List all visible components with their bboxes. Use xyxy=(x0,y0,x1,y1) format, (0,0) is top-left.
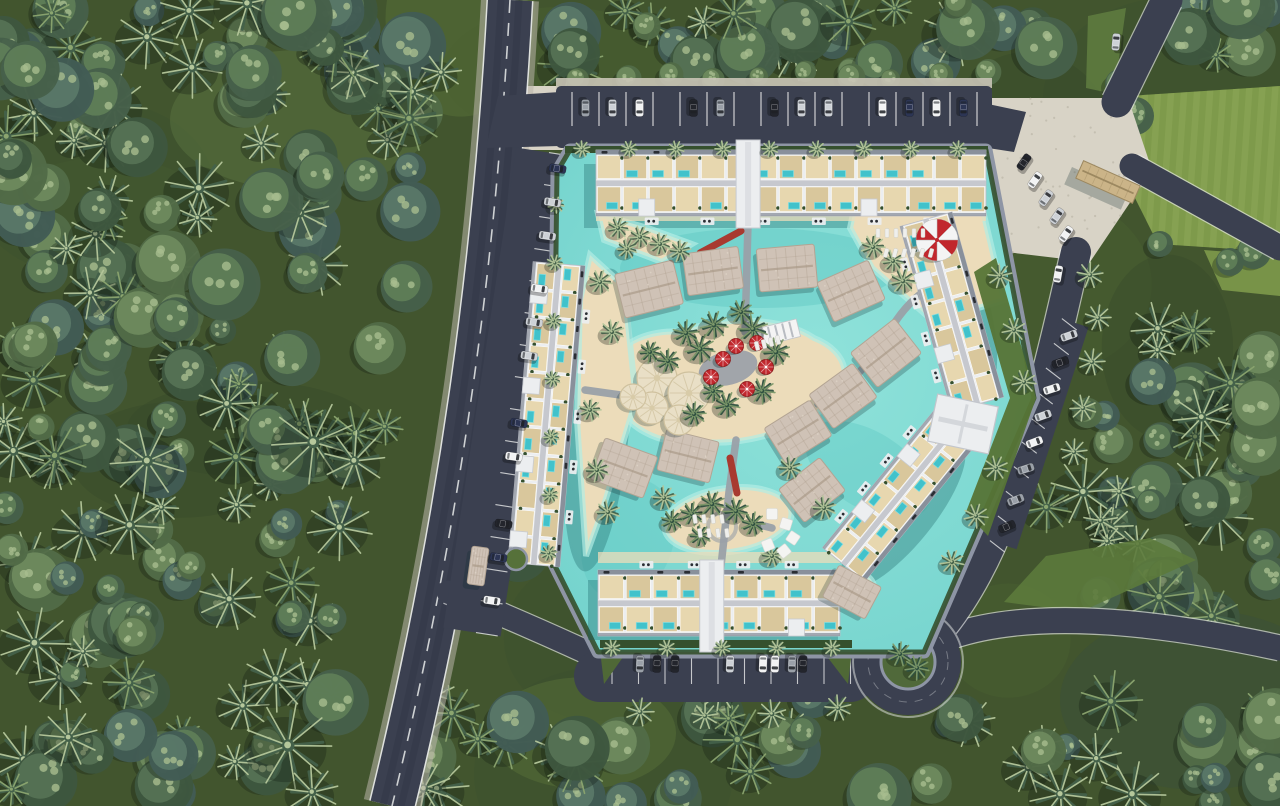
car xyxy=(956,97,967,117)
terrace-pier xyxy=(565,510,574,525)
stair-core xyxy=(522,377,540,394)
terrace-pier xyxy=(639,561,653,569)
stair-core xyxy=(861,199,877,216)
car xyxy=(784,653,796,673)
terrace-pier xyxy=(645,218,659,226)
car xyxy=(795,653,807,673)
site-plan-canvas xyxy=(0,0,1280,806)
car xyxy=(632,653,644,673)
top-parking-lot xyxy=(556,86,992,148)
floating-daybed xyxy=(767,509,778,520)
walkway xyxy=(760,525,772,528)
thatched-cabana xyxy=(752,244,818,297)
terrace-pier xyxy=(812,218,826,226)
sun-lounger xyxy=(885,229,889,238)
terrace-pier xyxy=(785,561,799,569)
car xyxy=(649,653,661,673)
car xyxy=(578,97,589,117)
terrace-pier xyxy=(582,309,591,324)
sun-lounger xyxy=(921,229,925,238)
car xyxy=(632,97,643,117)
car xyxy=(875,97,886,117)
car xyxy=(713,97,724,117)
terrace-pier xyxy=(569,460,578,475)
terrace-pier xyxy=(700,218,714,226)
sun-lounger xyxy=(903,229,907,238)
car xyxy=(794,97,805,117)
stair-core xyxy=(639,199,655,216)
car xyxy=(755,653,767,673)
car xyxy=(605,97,616,117)
car xyxy=(667,653,679,673)
sun-lounger xyxy=(876,229,880,238)
car xyxy=(722,653,734,673)
car xyxy=(929,97,940,117)
car xyxy=(902,97,913,117)
terrace-pier xyxy=(577,359,586,374)
terrace-pier xyxy=(868,218,882,226)
median-circle xyxy=(505,548,527,570)
building-row-north xyxy=(596,140,988,228)
terrace-pier xyxy=(736,561,750,569)
sun-lounger xyxy=(894,229,898,238)
resort-aerial-render xyxy=(0,0,1280,806)
car xyxy=(686,97,697,117)
car xyxy=(821,97,832,117)
car xyxy=(767,97,778,117)
car xyxy=(767,653,779,673)
sun-lounger xyxy=(912,229,916,238)
stair-core xyxy=(788,619,804,636)
stair-core xyxy=(509,531,527,548)
